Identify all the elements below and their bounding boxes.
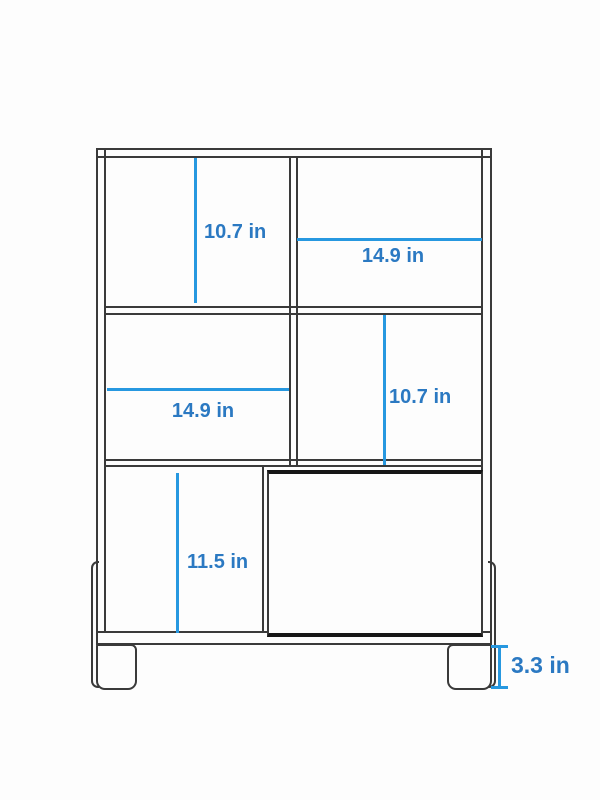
- center-divider-right-line: [296, 156, 298, 466]
- dimension-line-top-left-height: [194, 158, 197, 303]
- dimension-label-top-left-height: 10.7 in: [204, 221, 266, 243]
- dimension-label-bottom-left-height: 11.5 in: [187, 551, 248, 573]
- dimension-line-bottom-left-height: [176, 473, 179, 633]
- dimension-label-middle-right-height: 10.7 in: [389, 386, 451, 408]
- dimension-label-top-right-width: 14.9 in: [330, 245, 456, 267]
- upper-shelf-top-line: [106, 306, 481, 308]
- left-leg: [96, 644, 137, 690]
- dimension-line-middle-right-height: [383, 315, 386, 465]
- dimension-line-middle-left-width: [107, 388, 289, 391]
- top-panel-line: [98, 156, 490, 158]
- dimension-line-top-right-width: [297, 238, 482, 241]
- leg-dimension-bottom-cap: [491, 686, 508, 689]
- upper-shelf-bottom-line: [106, 313, 481, 315]
- dimension-line-leg-height: [498, 646, 501, 688]
- right-leg: [447, 644, 492, 690]
- dimension-label-middle-left-width: 14.9 in: [140, 400, 266, 422]
- dimension-label-leg-height: 3.3 in: [511, 653, 570, 678]
- left-side-panel-line: [104, 150, 106, 633]
- leg-dimension-top-cap: [491, 645, 508, 648]
- sliding-door-panel: [267, 470, 483, 637]
- center-divider-left-line: [289, 156, 291, 466]
- lower-shelf-top-line: [106, 459, 481, 461]
- lower-shelf-bottom-line: [106, 465, 481, 467]
- bottom-row-partition-line: [262, 465, 264, 633]
- dimension-diagram: 10.7 in 14.9 in 14.9 in 10.7 in 11.5 in …: [0, 0, 600, 800]
